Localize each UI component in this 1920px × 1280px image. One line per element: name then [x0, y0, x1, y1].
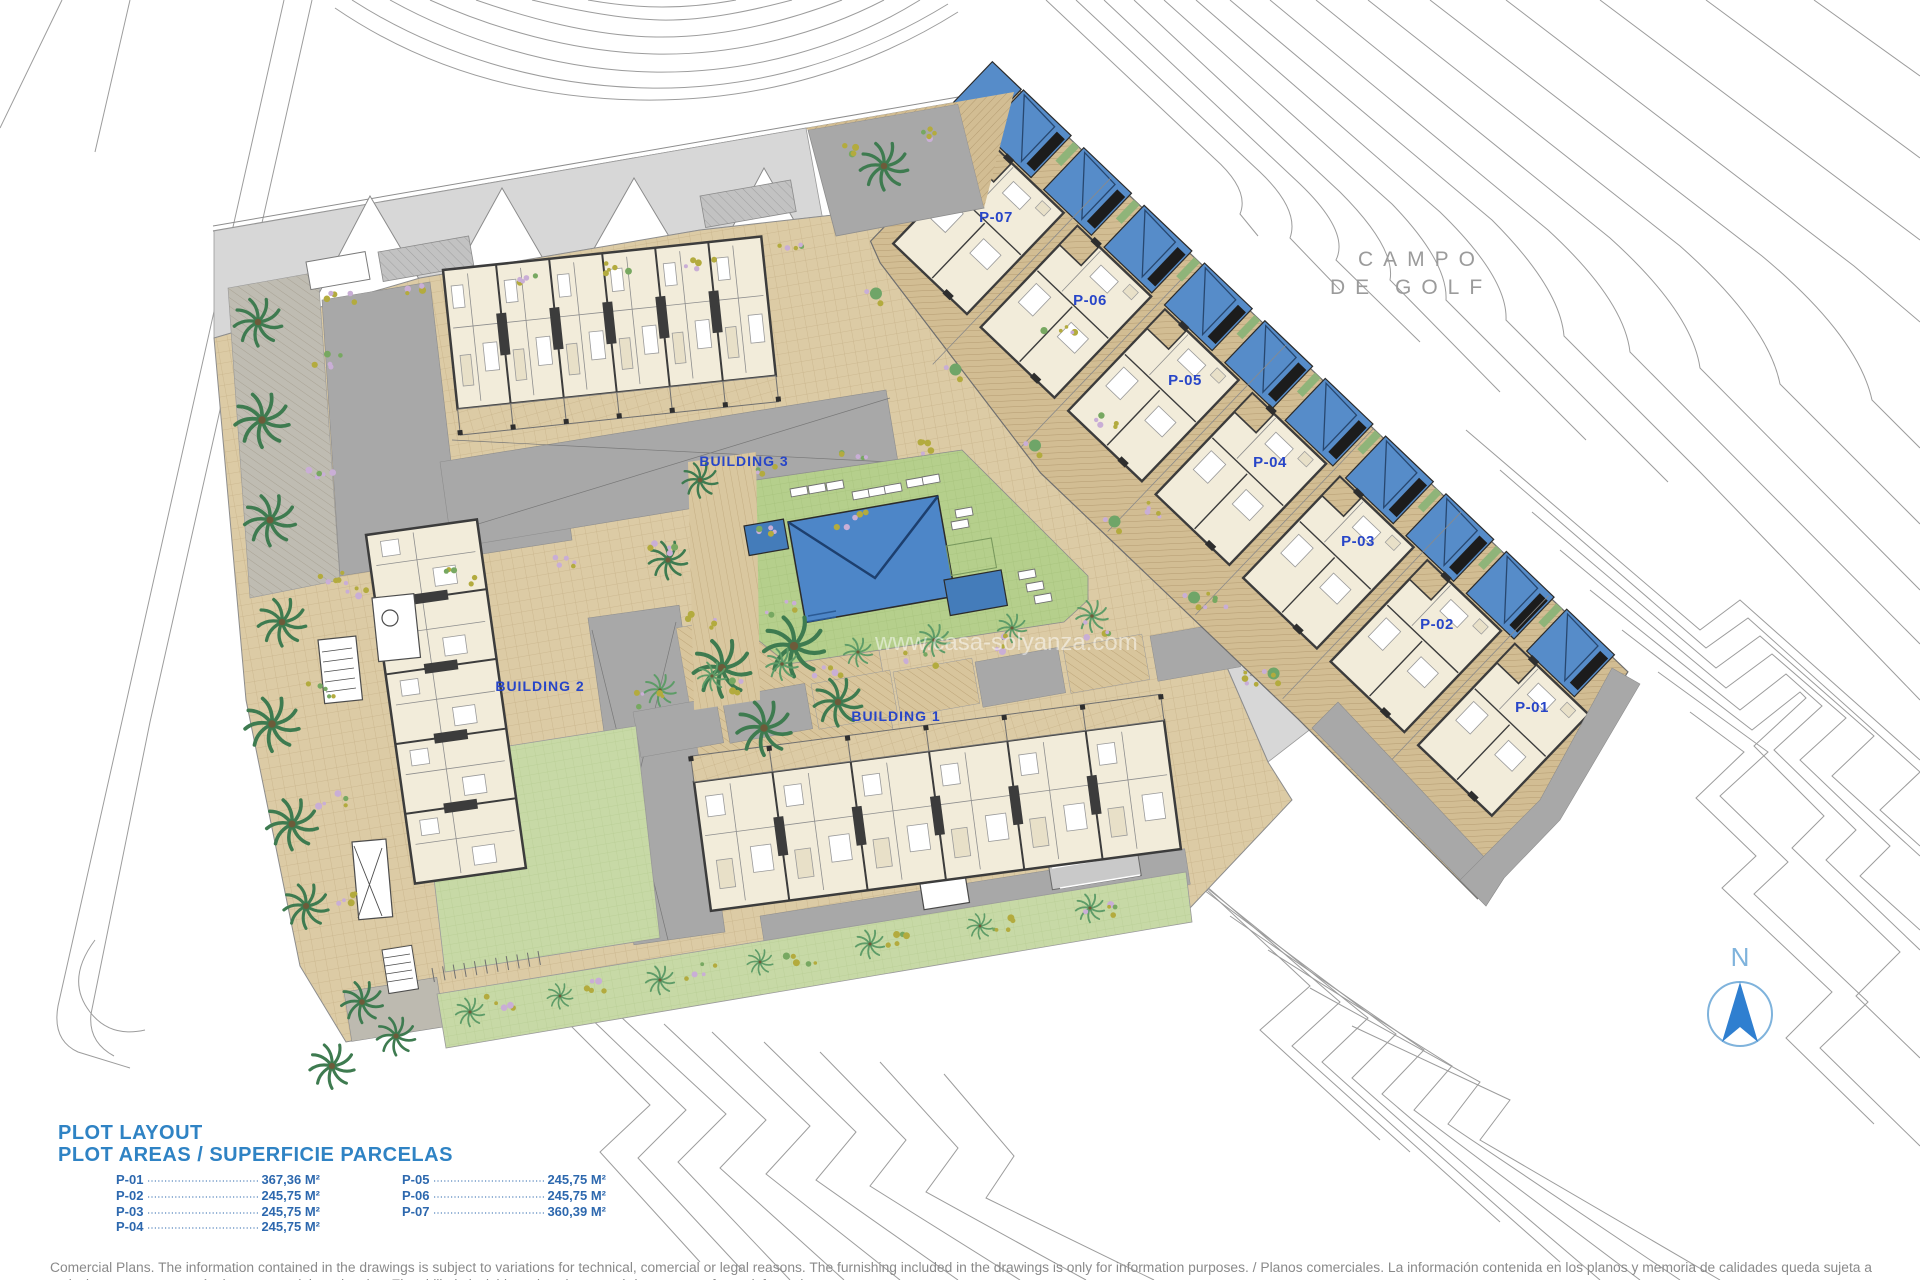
- svg-text:BUILDING 3: BUILDING 3: [699, 453, 788, 469]
- svg-text:P-01: P-01: [116, 1172, 143, 1187]
- svg-text:P-05: P-05: [1168, 372, 1202, 389]
- svg-text:P-02: P-02: [1420, 616, 1454, 633]
- svg-text:P-04: P-04: [116, 1219, 144, 1234]
- svg-text:P-06: P-06: [1073, 292, 1107, 309]
- svg-text:P-05: P-05: [402, 1172, 429, 1187]
- svg-text:www.casa-solyanza.com: www.casa-solyanza.com: [874, 629, 1138, 656]
- svg-text:P-07: P-07: [402, 1204, 429, 1219]
- svg-text:CAMPO: CAMPO: [1358, 248, 1485, 271]
- svg-text:BUILDING 2: BUILDING 2: [495, 678, 584, 694]
- svg-text:245,75 M²: 245,75 M²: [547, 1188, 606, 1203]
- svg-text:245,75 M²: 245,75 M²: [261, 1219, 320, 1234]
- svg-text:P-04: P-04: [1253, 454, 1287, 471]
- svg-text:245,75 M²: 245,75 M²: [547, 1172, 606, 1187]
- svg-text:Comercial Plans. The informati: Comercial Plans. The information contain…: [50, 1260, 1872, 1275]
- svg-text:367,36 M²: 367,36 M²: [261, 1172, 320, 1187]
- svg-text:P-07: P-07: [979, 209, 1013, 226]
- svg-text:N: N: [1731, 942, 1750, 972]
- svg-text:P-02: P-02: [116, 1188, 143, 1203]
- svg-text:360,39 M²: 360,39 M²: [547, 1204, 606, 1219]
- svg-text:245,75 M²: 245,75 M²: [261, 1188, 320, 1203]
- svg-text:PLOT LAYOUT: PLOT LAYOUT: [58, 1122, 203, 1144]
- svg-text:P-03: P-03: [116, 1204, 143, 1219]
- svg-text:P-03: P-03: [1341, 533, 1375, 550]
- svg-text:245,75 M²: 245,75 M²: [261, 1204, 320, 1219]
- svg-text:DE GOLF: DE GOLF: [1330, 276, 1492, 299]
- svg-text:P-01: P-01: [1515, 699, 1549, 716]
- svg-text:P-06: P-06: [402, 1188, 429, 1203]
- svg-text:BUILDING 1: BUILDING 1: [851, 708, 940, 724]
- svg-text:PLOT AREAS / SUPERFICIE PARCEL: PLOT AREAS / SUPERFICIE PARCELAS: [58, 1144, 453, 1166]
